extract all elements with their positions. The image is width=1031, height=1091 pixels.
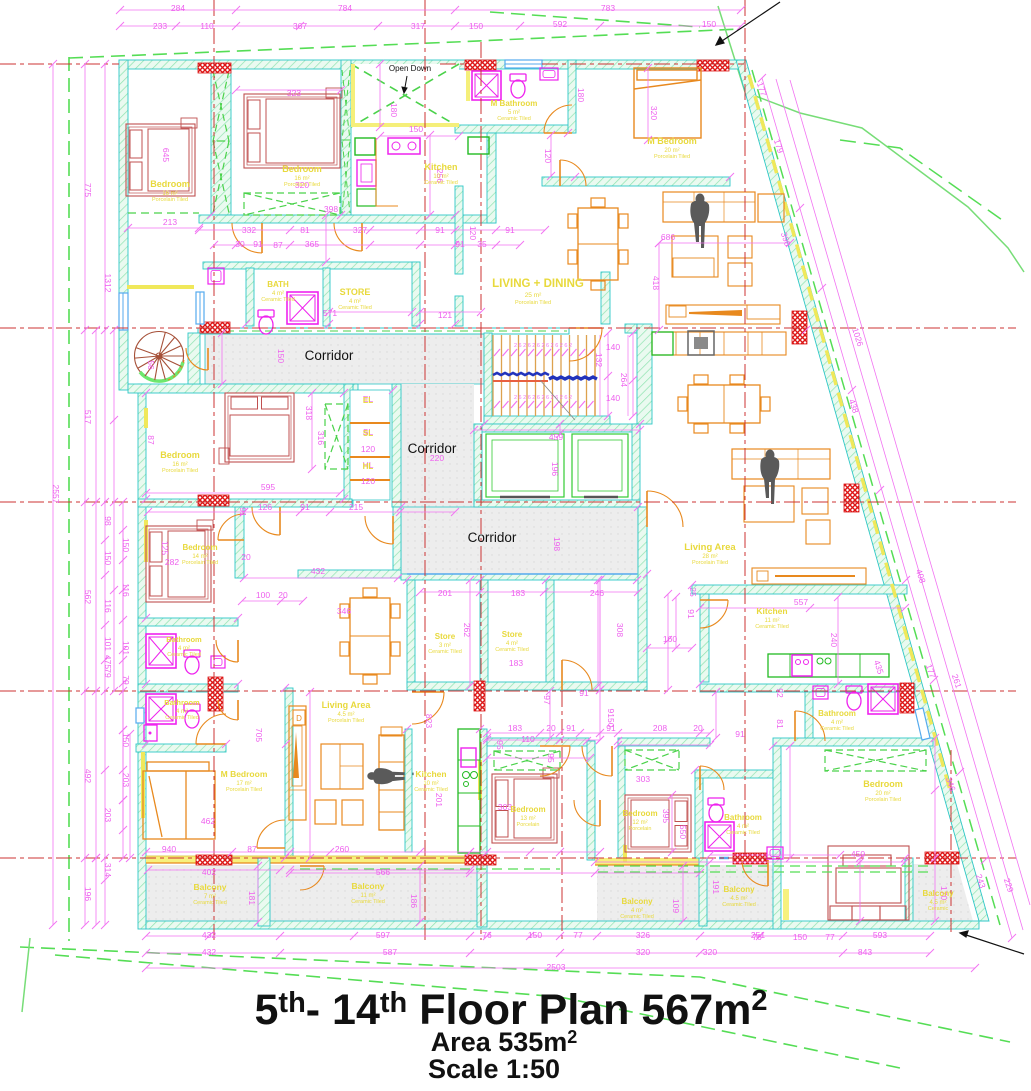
- svg-text:203: 203: [121, 773, 131, 787]
- svg-text:320: 320: [636, 947, 650, 957]
- svg-text:775: 775: [83, 183, 93, 197]
- svg-text:95: 95: [495, 740, 505, 750]
- svg-text:Ceramic Tiled: Ceramic Tiled: [351, 899, 385, 905]
- svg-text:284: 284: [171, 3, 185, 13]
- svg-text:Ceramic Tiled: Ceramic Tiled: [165, 715, 199, 721]
- svg-text:Area 535m2: Area 535m2: [431, 1027, 578, 1057]
- svg-text:Ceramic Tiled: Ceramic Tiled: [722, 902, 756, 908]
- svg-text:314: 314: [103, 863, 113, 877]
- svg-text:264: 264: [619, 373, 629, 387]
- svg-text:327: 327: [353, 225, 367, 235]
- svg-text:91: 91: [505, 225, 515, 235]
- svg-text:186: 186: [409, 894, 419, 908]
- svg-text:Bathroom: Bathroom: [818, 709, 856, 718]
- svg-text:160: 160: [663, 634, 677, 644]
- svg-text:Balcony: Balcony: [351, 881, 384, 891]
- svg-text:432: 432: [202, 947, 216, 957]
- svg-text:56: 56: [146, 360, 156, 370]
- svg-text:201: 201: [438, 588, 452, 598]
- svg-text:198: 198: [552, 537, 562, 551]
- svg-text:LIVING + DINING: LIVING + DINING: [492, 278, 584, 290]
- svg-text:517: 517: [83, 410, 93, 424]
- svg-text:Porcelain Tiled: Porcelain Tiled: [692, 560, 728, 566]
- svg-text:Corridor: Corridor: [468, 530, 517, 545]
- svg-text:Kitchen: Kitchen: [756, 606, 787, 616]
- svg-text:303: 303: [636, 774, 650, 784]
- svg-text:25: 25: [688, 587, 698, 597]
- svg-text:203: 203: [103, 808, 113, 822]
- svg-text:Bedroom: Bedroom: [160, 450, 200, 460]
- svg-text:562: 562: [83, 590, 93, 604]
- svg-text:592: 592: [553, 19, 567, 29]
- svg-text:Ceramic Tiled: Ceramic Tiled: [497, 116, 531, 122]
- svg-text:Porcelain Tiled: Porcelain Tiled: [162, 468, 198, 474]
- svg-text:110: 110: [521, 734, 535, 744]
- svg-text:120: 120: [361, 476, 375, 486]
- svg-text:365: 365: [305, 239, 319, 249]
- svg-text:346: 346: [337, 606, 351, 616]
- svg-text:332: 332: [242, 225, 256, 235]
- svg-text:557: 557: [794, 597, 808, 607]
- svg-text:784: 784: [338, 3, 352, 13]
- svg-text:120: 120: [543, 149, 553, 163]
- svg-text:240: 240: [829, 633, 839, 647]
- svg-text:282: 282: [165, 557, 179, 567]
- svg-text:Bedroom: Bedroom: [863, 779, 903, 789]
- svg-text:Ceramic Tiled: Ceramic Tiled: [428, 649, 462, 655]
- svg-text:Bedroom: Bedroom: [622, 809, 657, 818]
- svg-text:180: 180: [389, 103, 399, 117]
- svg-text:Porcelain: Porcelain: [629, 826, 652, 832]
- svg-text:120: 120: [361, 444, 375, 454]
- svg-text:Porcelain Tiled: Porcelain Tiled: [152, 197, 188, 203]
- svg-text:79: 79: [121, 675, 131, 685]
- svg-text:9150: 9150: [606, 709, 616, 728]
- svg-text:320: 320: [703, 947, 717, 957]
- svg-text:318: 318: [304, 406, 314, 420]
- svg-text:20: 20: [241, 552, 251, 562]
- svg-text:196: 196: [83, 887, 93, 901]
- svg-text:Balcony: Balcony: [193, 882, 226, 892]
- svg-text:Ceramic Tiled: Ceramic Tiled: [820, 726, 854, 732]
- svg-text:196: 196: [550, 462, 560, 476]
- svg-text:597: 597: [376, 930, 390, 940]
- svg-text:81: 81: [775, 719, 785, 729]
- svg-text:100: 100: [256, 590, 270, 600]
- svg-text:418: 418: [651, 276, 661, 290]
- svg-text:109: 109: [671, 899, 681, 913]
- svg-text:81: 81: [300, 225, 310, 235]
- svg-text:150: 150: [121, 538, 131, 552]
- svg-text:Kitchen: Kitchen: [424, 162, 457, 172]
- svg-text:181: 181: [247, 891, 257, 905]
- svg-text:940: 940: [162, 844, 176, 854]
- svg-text:Bedroom: Bedroom: [510, 805, 545, 814]
- svg-text:126: 126: [258, 502, 272, 512]
- svg-text:395: 395: [661, 809, 671, 823]
- svg-text:686: 686: [661, 232, 675, 242]
- svg-text:116: 116: [121, 583, 131, 597]
- svg-text:Corridor: Corridor: [305, 348, 354, 363]
- svg-text:150: 150: [276, 349, 286, 363]
- svg-text:95: 95: [546, 753, 556, 763]
- svg-text:Porcelain: Porcelain: [517, 822, 540, 828]
- svg-text:2503: 2503: [547, 962, 566, 972]
- svg-text:260: 260: [335, 844, 349, 854]
- svg-text:Bedroom: Bedroom: [182, 543, 217, 552]
- svg-text:402: 402: [202, 867, 216, 877]
- svg-text:150: 150: [793, 932, 807, 942]
- svg-text:Bathroom: Bathroom: [724, 813, 762, 822]
- svg-text:D: D: [296, 714, 302, 723]
- svg-text:Corridor: Corridor: [408, 441, 457, 456]
- svg-text:571: 571: [323, 308, 337, 318]
- svg-text:91: 91: [735, 729, 745, 739]
- svg-text:110: 110: [200, 21, 214, 31]
- svg-text:462: 462: [201, 816, 215, 826]
- svg-text:125: 125: [160, 541, 170, 555]
- svg-text:132: 132: [594, 353, 604, 367]
- svg-text:587: 587: [383, 947, 397, 957]
- svg-text:SL: SL: [363, 429, 373, 438]
- svg-text:76: 76: [752, 932, 762, 942]
- svg-text:150: 150: [702, 19, 716, 29]
- svg-text:Porcelain Tiled: Porcelain Tiled: [515, 300, 551, 306]
- svg-text:Kitchen: Kitchen: [415, 769, 446, 779]
- svg-text:EL: EL: [363, 396, 373, 405]
- svg-text:Living Area: Living Area: [322, 700, 372, 710]
- svg-text:367: 367: [293, 21, 307, 31]
- svg-text:Ceramic Tiled: Ceramic Tiled: [338, 305, 372, 311]
- svg-text:208: 208: [653, 723, 667, 733]
- svg-text:79: 79: [103, 668, 113, 678]
- svg-text:326: 326: [636, 930, 650, 940]
- svg-text:191: 191: [711, 880, 721, 894]
- svg-text:645: 645: [161, 148, 171, 162]
- svg-text:492: 492: [83, 769, 93, 783]
- svg-text:30: 30: [235, 239, 245, 249]
- svg-text:823: 823: [424, 714, 434, 728]
- svg-text:116: 116: [103, 599, 113, 613]
- svg-text:Ceramic Tiled: Ceramic Tiled: [755, 624, 789, 630]
- svg-text:180: 180: [576, 88, 586, 102]
- svg-text:705: 705: [254, 728, 264, 742]
- svg-text:140: 140: [606, 393, 620, 403]
- svg-text:77: 77: [573, 930, 583, 940]
- svg-text:M Bedroom: M Bedroom: [647, 136, 697, 146]
- svg-text:Ceramic Tiled: Ceramic Tiled: [424, 180, 458, 186]
- svg-text:323: 323: [287, 88, 301, 98]
- svg-text:213: 213: [163, 217, 177, 227]
- svg-text:Ceramic Tiled: Ceramic Tiled: [495, 647, 529, 653]
- svg-text:Balcony: Balcony: [723, 885, 755, 894]
- svg-text:M Bathroom: M Bathroom: [491, 99, 538, 108]
- svg-text:91: 91: [686, 609, 696, 619]
- svg-text:2 6 2 6 2 6 2 6 2 6 2 6 2: 2 6 2 6 2 6 2 6 2 6 2 6 2: [514, 343, 572, 349]
- svg-text:150: 150: [469, 21, 483, 31]
- svg-text:183: 183: [508, 723, 522, 733]
- svg-text:Living Area: Living Area: [684, 542, 736, 553]
- svg-text:87: 87: [146, 435, 156, 445]
- svg-text:1312: 1312: [103, 274, 113, 293]
- svg-text:Ceramic Tiled: Ceramic Tiled: [620, 914, 654, 920]
- svg-text:77: 77: [825, 932, 835, 942]
- svg-text:201: 201: [434, 793, 444, 807]
- svg-text:Bathroom: Bathroom: [164, 698, 200, 707]
- svg-text:Bedroom: Bedroom: [150, 179, 190, 189]
- svg-text:Ceramic Tiled: Ceramic Tiled: [726, 830, 760, 836]
- svg-text:595: 595: [261, 482, 275, 492]
- svg-text:308: 308: [615, 623, 625, 637]
- svg-text:215: 215: [349, 502, 363, 512]
- svg-text:450: 450: [851, 849, 865, 859]
- svg-text:843: 843: [858, 947, 872, 957]
- svg-text:233: 233: [153, 21, 167, 31]
- svg-text:97: 97: [542, 695, 552, 705]
- svg-text:M Bedroom: M Bedroom: [221, 769, 268, 779]
- svg-text:76: 76: [482, 930, 492, 940]
- svg-text:91: 91: [238, 507, 248, 517]
- svg-text:150: 150: [528, 930, 542, 940]
- svg-text:20: 20: [546, 723, 556, 733]
- svg-text:783: 783: [601, 3, 615, 13]
- svg-text:183: 183: [511, 588, 525, 598]
- svg-text:Porcelain Tiled: Porcelain Tiled: [865, 797, 901, 803]
- svg-text:2557: 2557: [51, 485, 61, 504]
- svg-text:STORE: STORE: [340, 287, 371, 297]
- svg-text:432: 432: [202, 930, 216, 940]
- svg-text:35: 35: [477, 239, 487, 249]
- svg-text:432: 432: [311, 566, 325, 576]
- svg-text:Ceramic: Ceramic: [928, 906, 949, 912]
- svg-text:475: 475: [103, 655, 113, 669]
- svg-text:101: 101: [103, 637, 113, 651]
- svg-text:183: 183: [509, 658, 523, 668]
- svg-text:87: 87: [273, 240, 283, 250]
- svg-text:550: 550: [678, 825, 688, 839]
- svg-text:246: 246: [590, 588, 604, 598]
- svg-text:316: 316: [316, 431, 326, 445]
- svg-text:Ceramic Tiled: Ceramic Tiled: [193, 900, 227, 906]
- svg-text:BATH: BATH: [267, 280, 289, 289]
- svg-text:Balcony: Balcony: [922, 889, 954, 898]
- svg-text:Porcelain Tiled: Porcelain Tiled: [182, 560, 218, 566]
- svg-text:98: 98: [103, 516, 113, 526]
- svg-text:566: 566: [376, 867, 390, 877]
- svg-text:101: 101: [121, 641, 131, 655]
- svg-text:Store: Store: [502, 630, 523, 639]
- svg-text:Ceramic Tiled: Ceramic Tiled: [414, 787, 448, 793]
- svg-text:HL: HL: [363, 462, 374, 471]
- svg-text:Porcelain Tiled: Porcelain Tiled: [654, 154, 690, 160]
- svg-text:Porcelain Tiled: Porcelain Tiled: [328, 718, 364, 724]
- svg-text:Ceramic Tiled: Ceramic Tiled: [261, 297, 295, 303]
- svg-text:Scale 1:50: Scale 1:50: [428, 1054, 560, 1084]
- svg-text:91: 91: [455, 239, 465, 249]
- svg-text:Bathroom: Bathroom: [166, 635, 202, 644]
- svg-text:20: 20: [693, 723, 703, 733]
- svg-text:Bedroom: Bedroom: [282, 164, 322, 174]
- svg-text:Ceramic Tiled: Ceramic Tiled: [167, 652, 201, 658]
- svg-text:398: 398: [324, 204, 338, 214]
- svg-text:2 6 2 6 2 6 2 6 2 6 2 6 2: 2 6 2 6 2 6 2 6 2 6 2 6 2: [514, 395, 572, 401]
- svg-text:25 m²: 25 m²: [525, 292, 542, 299]
- svg-text:Porcelain Tiled: Porcelain Tiled: [284, 182, 320, 188]
- svg-text:150: 150: [409, 124, 423, 134]
- svg-text:Porcelain Tiled: Porcelain Tiled: [226, 787, 262, 793]
- svg-text:150: 150: [121, 733, 131, 747]
- svg-text:91: 91: [253, 239, 263, 249]
- svg-text:20: 20: [278, 590, 288, 600]
- svg-text:91: 91: [300, 502, 310, 512]
- svg-text:87: 87: [247, 844, 257, 854]
- svg-text:91: 91: [435, 225, 445, 235]
- svg-text:262: 262: [462, 623, 472, 637]
- svg-text:121: 121: [438, 310, 452, 320]
- svg-text:593: 593: [873, 930, 887, 940]
- svg-text:91: 91: [579, 688, 589, 698]
- svg-text:459: 459: [549, 432, 563, 442]
- svg-text:92: 92: [775, 688, 785, 698]
- svg-text:320: 320: [649, 106, 659, 120]
- svg-text:91: 91: [566, 723, 576, 733]
- svg-text:Store: Store: [435, 632, 456, 641]
- svg-text:Balcony: Balcony: [621, 897, 653, 906]
- svg-text:140: 140: [606, 342, 620, 352]
- svg-text:317: 317: [411, 21, 425, 31]
- svg-text:150: 150: [103, 551, 113, 565]
